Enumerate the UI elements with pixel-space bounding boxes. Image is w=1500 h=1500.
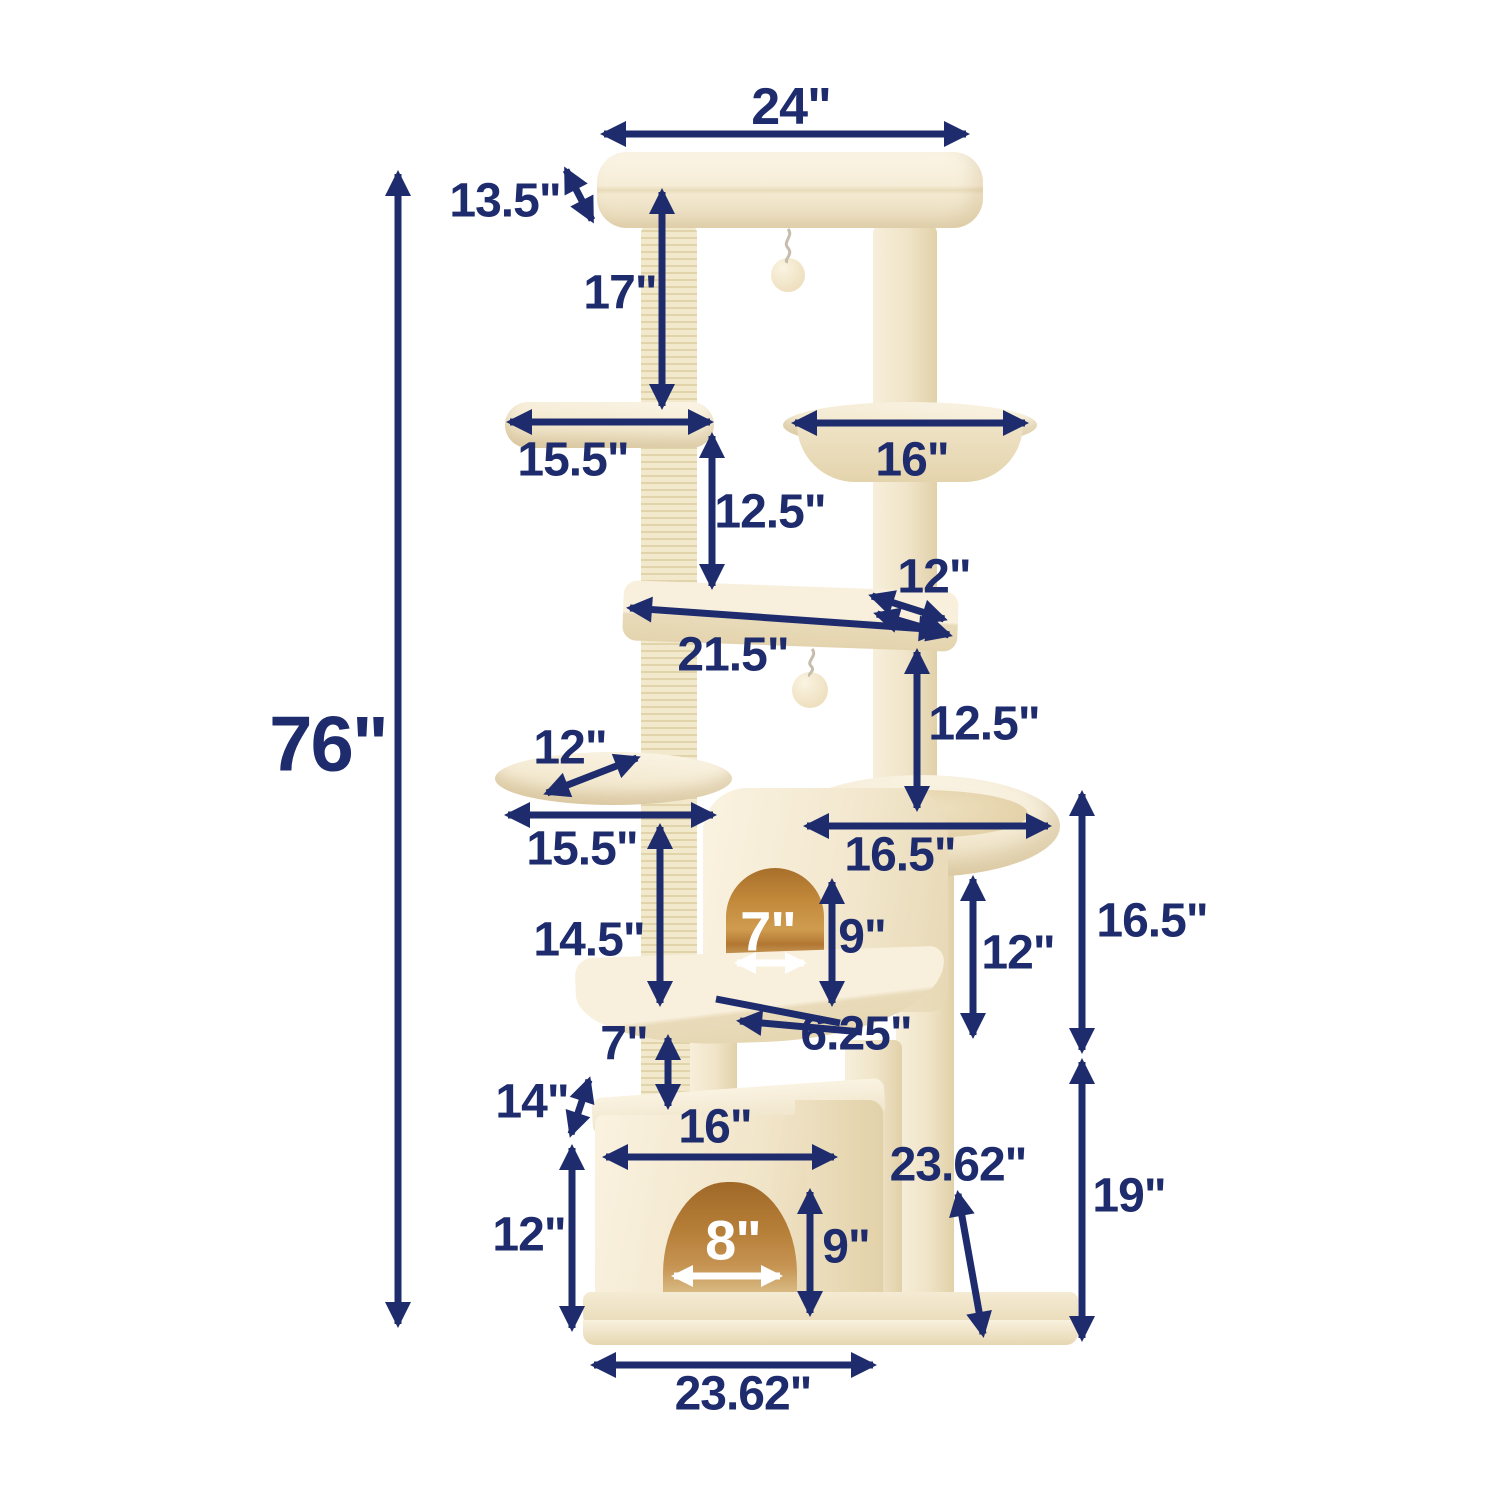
dim-label-corner-platform-depth: 12" <box>897 550 970 605</box>
dim-label-upper-condo-door-width: 7" <box>740 899 796 964</box>
dim-label-small-oval-platform-depth: 12" <box>533 721 606 776</box>
dim-label-lower-box-side-height: 14" <box>495 1075 568 1130</box>
dim-label-upper-condo-door-height: 9" <box>838 910 885 965</box>
dim-label-lower-gap-height: 7" <box>600 1017 647 1072</box>
dim-label-platform-thickness: 6.25" <box>800 1007 911 1062</box>
dim-label-top-gap-height: 17" <box>583 266 656 321</box>
dim-label-lower-box-width: 16" <box>678 1100 751 1155</box>
hanging-toy-ball-top <box>771 258 805 292</box>
dim-label-lower-box-height: 12" <box>492 1208 565 1263</box>
lower-box-side <box>795 1100 883 1322</box>
cat-tree-illustration <box>0 0 1500 1500</box>
dim-label-lower-box-door-height: 9" <box>822 1220 869 1275</box>
dim-label-overall-height: 76" <box>269 699 387 790</box>
dim-label-upper-left-platform-width: 15.5" <box>517 433 628 488</box>
dimension-diagram: 76" 24" 13.5" 17" 15.5" 16" 12.5" 12" 21… <box>0 0 1500 1500</box>
dim-label-small-oval-platform-width: 15.5" <box>526 822 637 877</box>
dim-label-top-perch-width: 24" <box>751 77 831 137</box>
dim-label-base-diagonal-depth: 23.62" <box>890 1138 1027 1193</box>
dim-label-upper-gap-height: 12.5" <box>714 485 825 540</box>
dim-label-round-bed-width: 16.5" <box>844 828 955 883</box>
top-perch <box>597 152 983 228</box>
dim-label-upper-section-height: 16.5" <box>1096 894 1207 949</box>
dim-label-mid-gap-height: 12.5" <box>928 697 1039 752</box>
dim-label-upper-condo-height: 14.5" <box>533 913 644 968</box>
base-front <box>583 1320 1078 1345</box>
dim-label-hammock-width: 16" <box>875 433 948 488</box>
dim-label-base-width: 23.62" <box>675 1367 812 1422</box>
dim-label-lower-section-height: 19" <box>1092 1169 1165 1224</box>
dim-label-top-perch-thickness: 13.5" <box>449 174 560 229</box>
small-oval-platform <box>495 752 732 805</box>
dim-label-lower-box-door-width: 8" <box>705 1208 761 1273</box>
hanging-toy-ball-mid <box>792 672 828 708</box>
dim-label-corner-platform-width: 21.5" <box>677 628 788 683</box>
dim-label-bed-to-platform-height: 12" <box>981 926 1054 981</box>
